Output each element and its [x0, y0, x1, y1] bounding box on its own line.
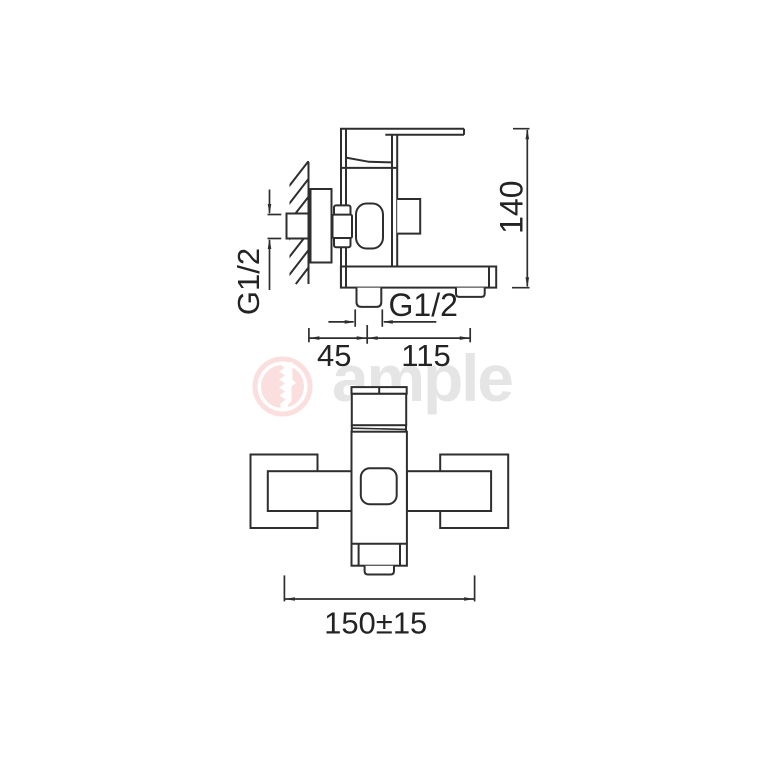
svg-text:140: 140: [494, 181, 530, 234]
svg-text:115: 115: [401, 338, 450, 373]
svg-text:G1/2: G1/2: [231, 248, 266, 315]
svg-text:45: 45: [317, 338, 351, 373]
svg-text:G1/2: G1/2: [389, 287, 458, 323]
svg-text:150±15: 150±15: [324, 606, 427, 641]
